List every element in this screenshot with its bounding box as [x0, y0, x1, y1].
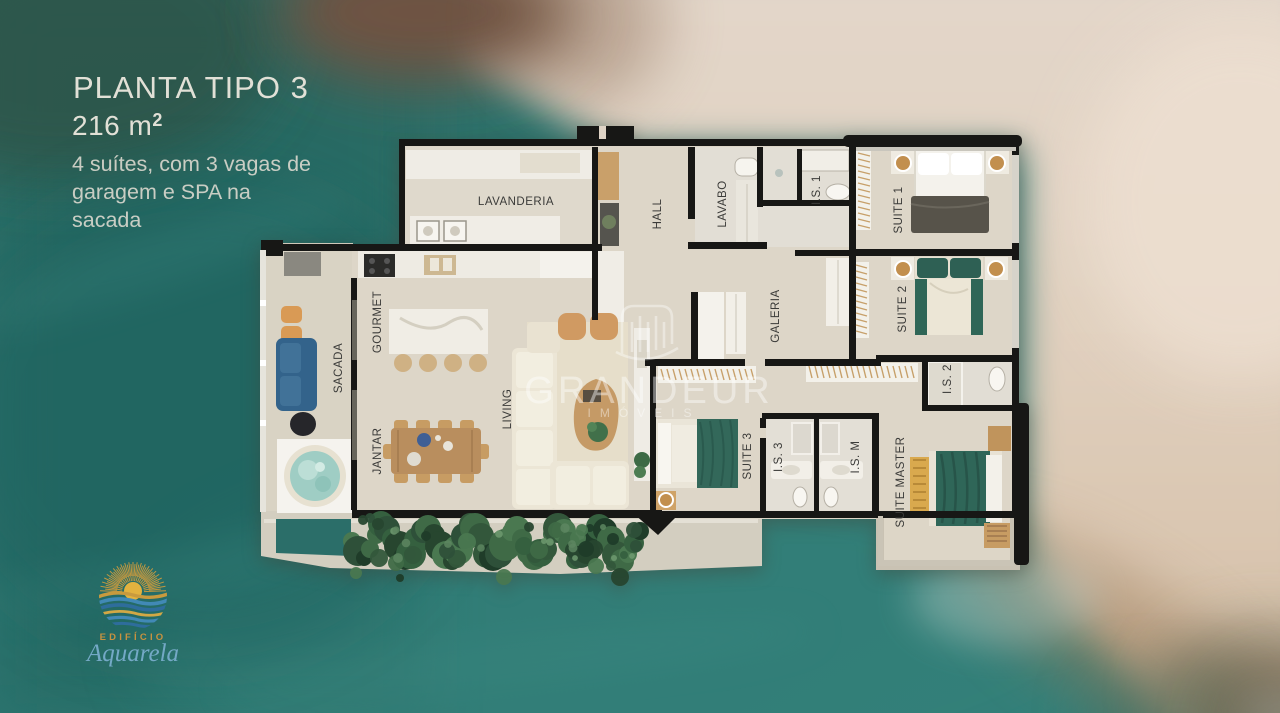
svg-text:SUITE 1: SUITE 1: [893, 187, 905, 234]
svg-text:SUITE MASTER: SUITE MASTER: [895, 437, 907, 528]
svg-text:SACADA: SACADA: [333, 343, 345, 393]
svg-text:JANTAR: JANTAR: [372, 428, 384, 475]
svg-text:LAVANDERIA: LAVANDERIA: [478, 196, 554, 208]
svg-text:GOURMET: GOURMET: [372, 291, 384, 353]
svg-text:PLANTA TIPO 3: PLANTA TIPO 3: [73, 70, 309, 105]
svg-text:garagem e SPA na: garagem e SPA na: [72, 180, 251, 204]
svg-text:SUITE 2: SUITE 2: [897, 286, 909, 333]
svg-text:4 suítes, com 3 vagas de: 4 suítes, com 3 vagas de: [72, 152, 311, 176]
svg-text:216 m2: 216 m2: [72, 110, 163, 141]
svg-text:GALERIA: GALERIA: [770, 289, 782, 342]
svg-text:LAVABO: LAVABO: [717, 180, 729, 227]
svg-text:I.S. 3: I.S. 3: [773, 442, 785, 472]
svg-text:LIVING: LIVING: [502, 389, 514, 430]
svg-text:Aquarela: Aquarela: [85, 640, 179, 667]
svg-text:I.S. 1: I.S. 1: [811, 175, 823, 205]
svg-text:SUITE 3: SUITE 3: [742, 433, 754, 480]
svg-text:HALL: HALL: [652, 199, 664, 230]
svg-text:IMÓVEIS: IMÓVEIS: [587, 405, 700, 420]
svg-text:sacada: sacada: [72, 208, 141, 232]
svg-text:I.S. M: I.S. M: [850, 440, 862, 473]
svg-text:I.S. 2: I.S. 2: [942, 364, 954, 394]
